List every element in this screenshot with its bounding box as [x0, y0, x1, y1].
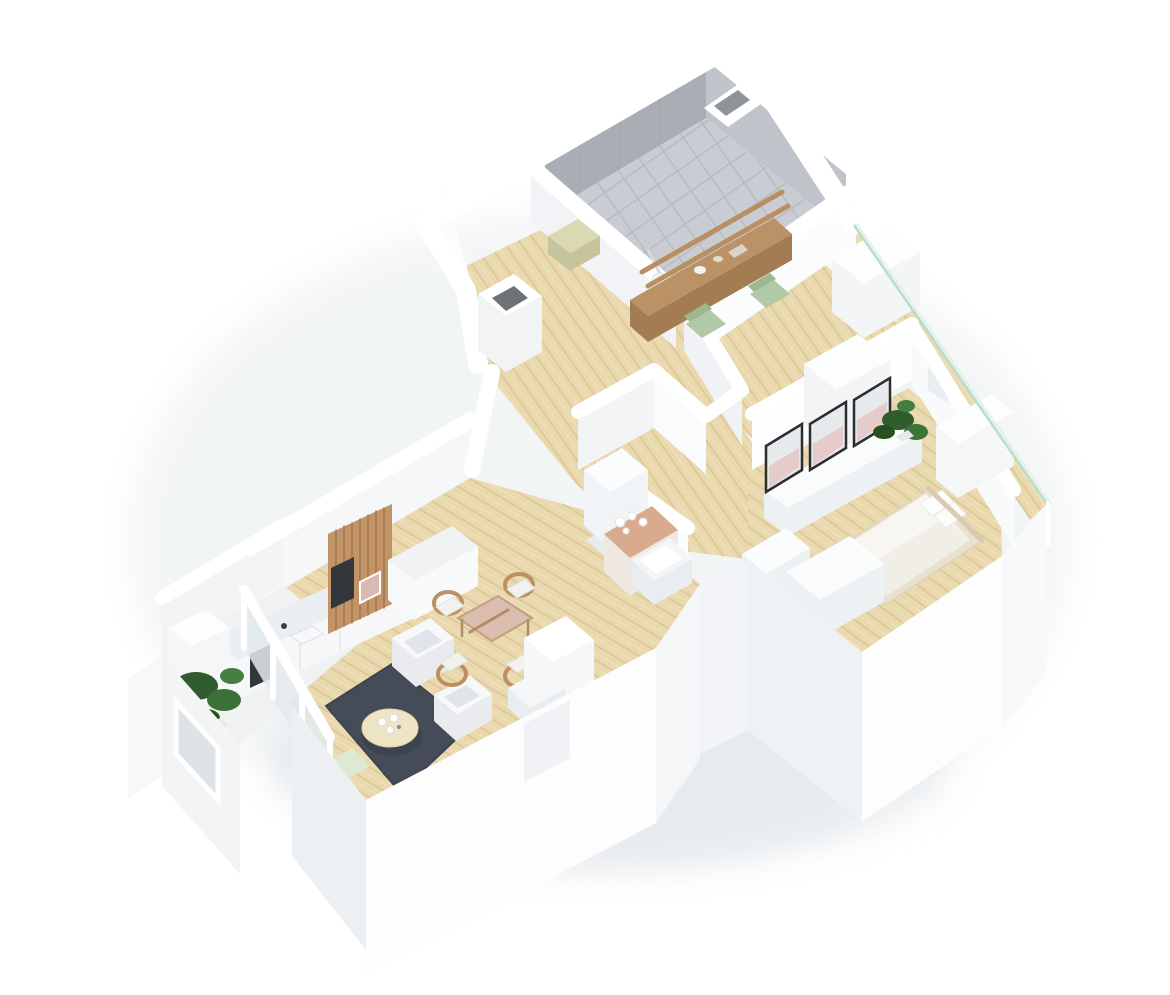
floor-plan-stage	[0, 0, 1170, 995]
balcony-plant-leaf-2	[207, 689, 241, 711]
vanity-bottle-1	[628, 512, 636, 520]
facade-inner-corner	[700, 560, 748, 754]
isometric-floor-plan-render	[0, 0, 1170, 995]
kitchen-faucet	[281, 623, 287, 629]
desk-item-book	[713, 256, 723, 262]
coffee-cup-3	[387, 727, 394, 734]
coffee-cup-1	[378, 718, 386, 726]
vanity-basin	[615, 517, 625, 527]
facade-balcony-left	[128, 656, 162, 798]
scene-root	[128, 42, 1070, 975]
coffee-cup-2	[390, 714, 398, 722]
bedroom-plant-leaf-4	[897, 400, 915, 412]
desk-item-paper	[694, 266, 706, 274]
vanity-cup	[623, 528, 629, 534]
coffee-table-dot	[397, 725, 401, 729]
vanity-bottle-2	[639, 518, 647, 526]
balcony-plant-leaf-4	[220, 668, 244, 684]
bedroom-plant-leaf-3	[873, 425, 895, 439]
